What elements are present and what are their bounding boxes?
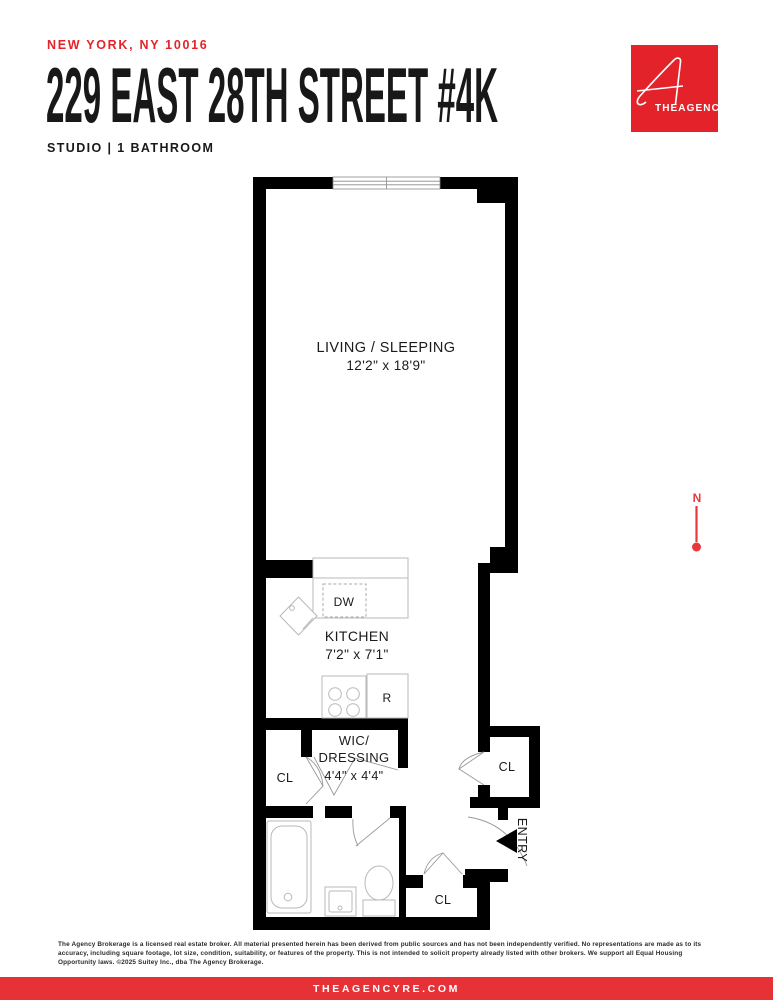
logo-brand: THEAGENCY (655, 103, 718, 114)
room-label-wic-1: WIC/ (339, 733, 369, 748)
closet-bottom-label: CL (435, 893, 452, 907)
compass-label: N (693, 491, 702, 505)
room-dims-living: 12'2" x 18'9" (346, 358, 425, 373)
entry-arrow-icon (496, 829, 517, 853)
toilet-icon (363, 866, 395, 916)
closet-left-label: CL (277, 771, 294, 785)
page-title: 229 EAST 28TH STREET #4K (44, 60, 524, 136)
walls (253, 177, 540, 930)
agency-logo: THEAGENCY (631, 45, 718, 132)
closet-right-label: CL (499, 760, 516, 774)
dishwasher-label: DW (334, 595, 355, 609)
compass-dot (692, 543, 701, 552)
logo-a-icon: THEAGENCY (631, 45, 718, 132)
closet-right-door-icon (459, 752, 484, 785)
closet-bottom-door-icon (424, 853, 462, 874)
room-label-wic-2: DRESSING (318, 750, 389, 765)
bathroom-sink-icon (325, 887, 356, 916)
room-label-kitchen: KITCHEN (325, 628, 389, 644)
page-title-text: 229 EAST 28TH STREET #4K (46, 60, 498, 136)
bathroom-door-icon (353, 818, 390, 846)
kitchen-sink-icon (280, 597, 317, 635)
website-link: THEAGENCYRE.COM (313, 983, 460, 995)
counter-icon (313, 558, 408, 578)
refrigerator-label: R (382, 691, 391, 705)
window-icon (333, 177, 440, 189)
disclaimer: The Agency Brokerage is a licensed real … (58, 940, 716, 967)
header-location: NEW YORK, NY 10016 (47, 38, 208, 52)
stove-icon (322, 676, 366, 718)
entry-label: ENTRY (515, 818, 529, 862)
floor-plan: LIVING / SLEEPING 12'2" x 18'9" KITCHEN … (245, 170, 545, 936)
compass-north: N (676, 480, 720, 556)
page: { "header": { "location": "NEW YORK, NY … (0, 0, 773, 1000)
room-label-living: LIVING / SLEEPING (317, 340, 456, 356)
room-dims-kitchen: 7'2" x 7'1" (325, 647, 388, 662)
bathtub-icon (267, 821, 311, 913)
page-subtitle: STUDIO | 1 BATHROOM (47, 141, 214, 155)
room-dims-wic: 4'4" x 4'4" (324, 769, 383, 783)
footer-bar: THEAGENCYRE.COM (0, 977, 773, 1000)
